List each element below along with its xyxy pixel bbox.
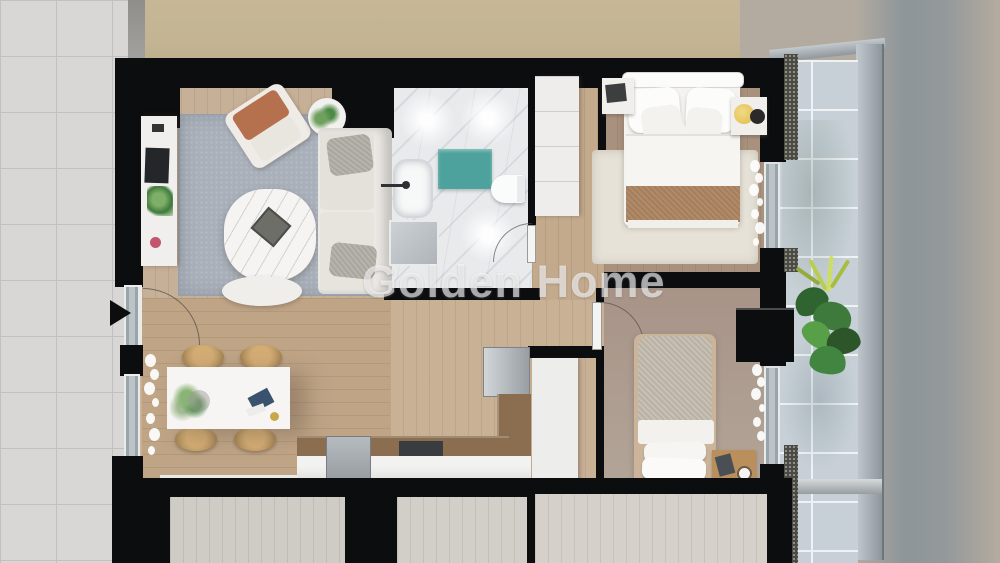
master-duvet	[626, 134, 740, 190]
master-throw	[626, 186, 740, 222]
dining-window	[124, 374, 140, 462]
bathtub	[393, 159, 433, 218]
bath-mat	[438, 149, 492, 189]
dining-table-vase-shadow	[188, 390, 210, 412]
nightstand-frame-deco	[605, 83, 627, 103]
lower-unit-floor	[170, 497, 345, 563]
tv-screen	[144, 148, 169, 184]
toilet-tank	[517, 176, 525, 202]
bedroom2-fold	[638, 420, 714, 444]
dining-chair	[240, 345, 282, 369]
ceiling-light-glow	[399, 92, 455, 148]
bedroom2-curtain	[752, 364, 762, 376]
master-balcony-door	[764, 162, 780, 252]
pouf	[222, 276, 302, 306]
dining-chair	[175, 427, 217, 451]
console-deco-pink	[150, 237, 161, 248]
insulation-hatch-top	[784, 54, 798, 160]
wall-bedroom2-left	[596, 348, 604, 483]
entrance-arrow-icon	[110, 300, 131, 326]
master-bed-foot	[628, 220, 738, 228]
pantry-block	[532, 358, 578, 483]
console-plant	[147, 186, 173, 216]
master-headboard	[622, 72, 744, 88]
balcony-plant	[788, 258, 868, 378]
nightstand-knob-deco	[750, 109, 765, 124]
bedroom2-wardrobe	[736, 308, 794, 362]
dining-chair	[182, 345, 224, 369]
sofa-pillow	[326, 133, 375, 177]
fridge	[483, 347, 530, 397]
bedroom2-balcony-door	[764, 366, 780, 468]
corridor-wardrobe	[535, 76, 579, 216]
sidewalk-tiles	[0, 0, 130, 563]
dining-chair	[234, 427, 276, 451]
bath-faucet-knob	[402, 181, 410, 189]
lower-unit-floor	[535, 494, 767, 563]
master-curtain	[750, 160, 760, 172]
dining-curtain	[145, 354, 156, 367]
wall-left-upper	[115, 58, 143, 287]
ceiling-light-glow	[460, 90, 516, 146]
floor-plan-render: Golden Home	[0, 0, 1000, 563]
bedroom2-blanket	[638, 336, 712, 424]
dining-table-coaster	[270, 412, 279, 421]
console-deco-dark	[152, 124, 164, 132]
wall-left-mid	[120, 345, 143, 376]
lower-unit-floor	[397, 497, 527, 563]
watermark: Golden Home	[362, 256, 666, 308]
